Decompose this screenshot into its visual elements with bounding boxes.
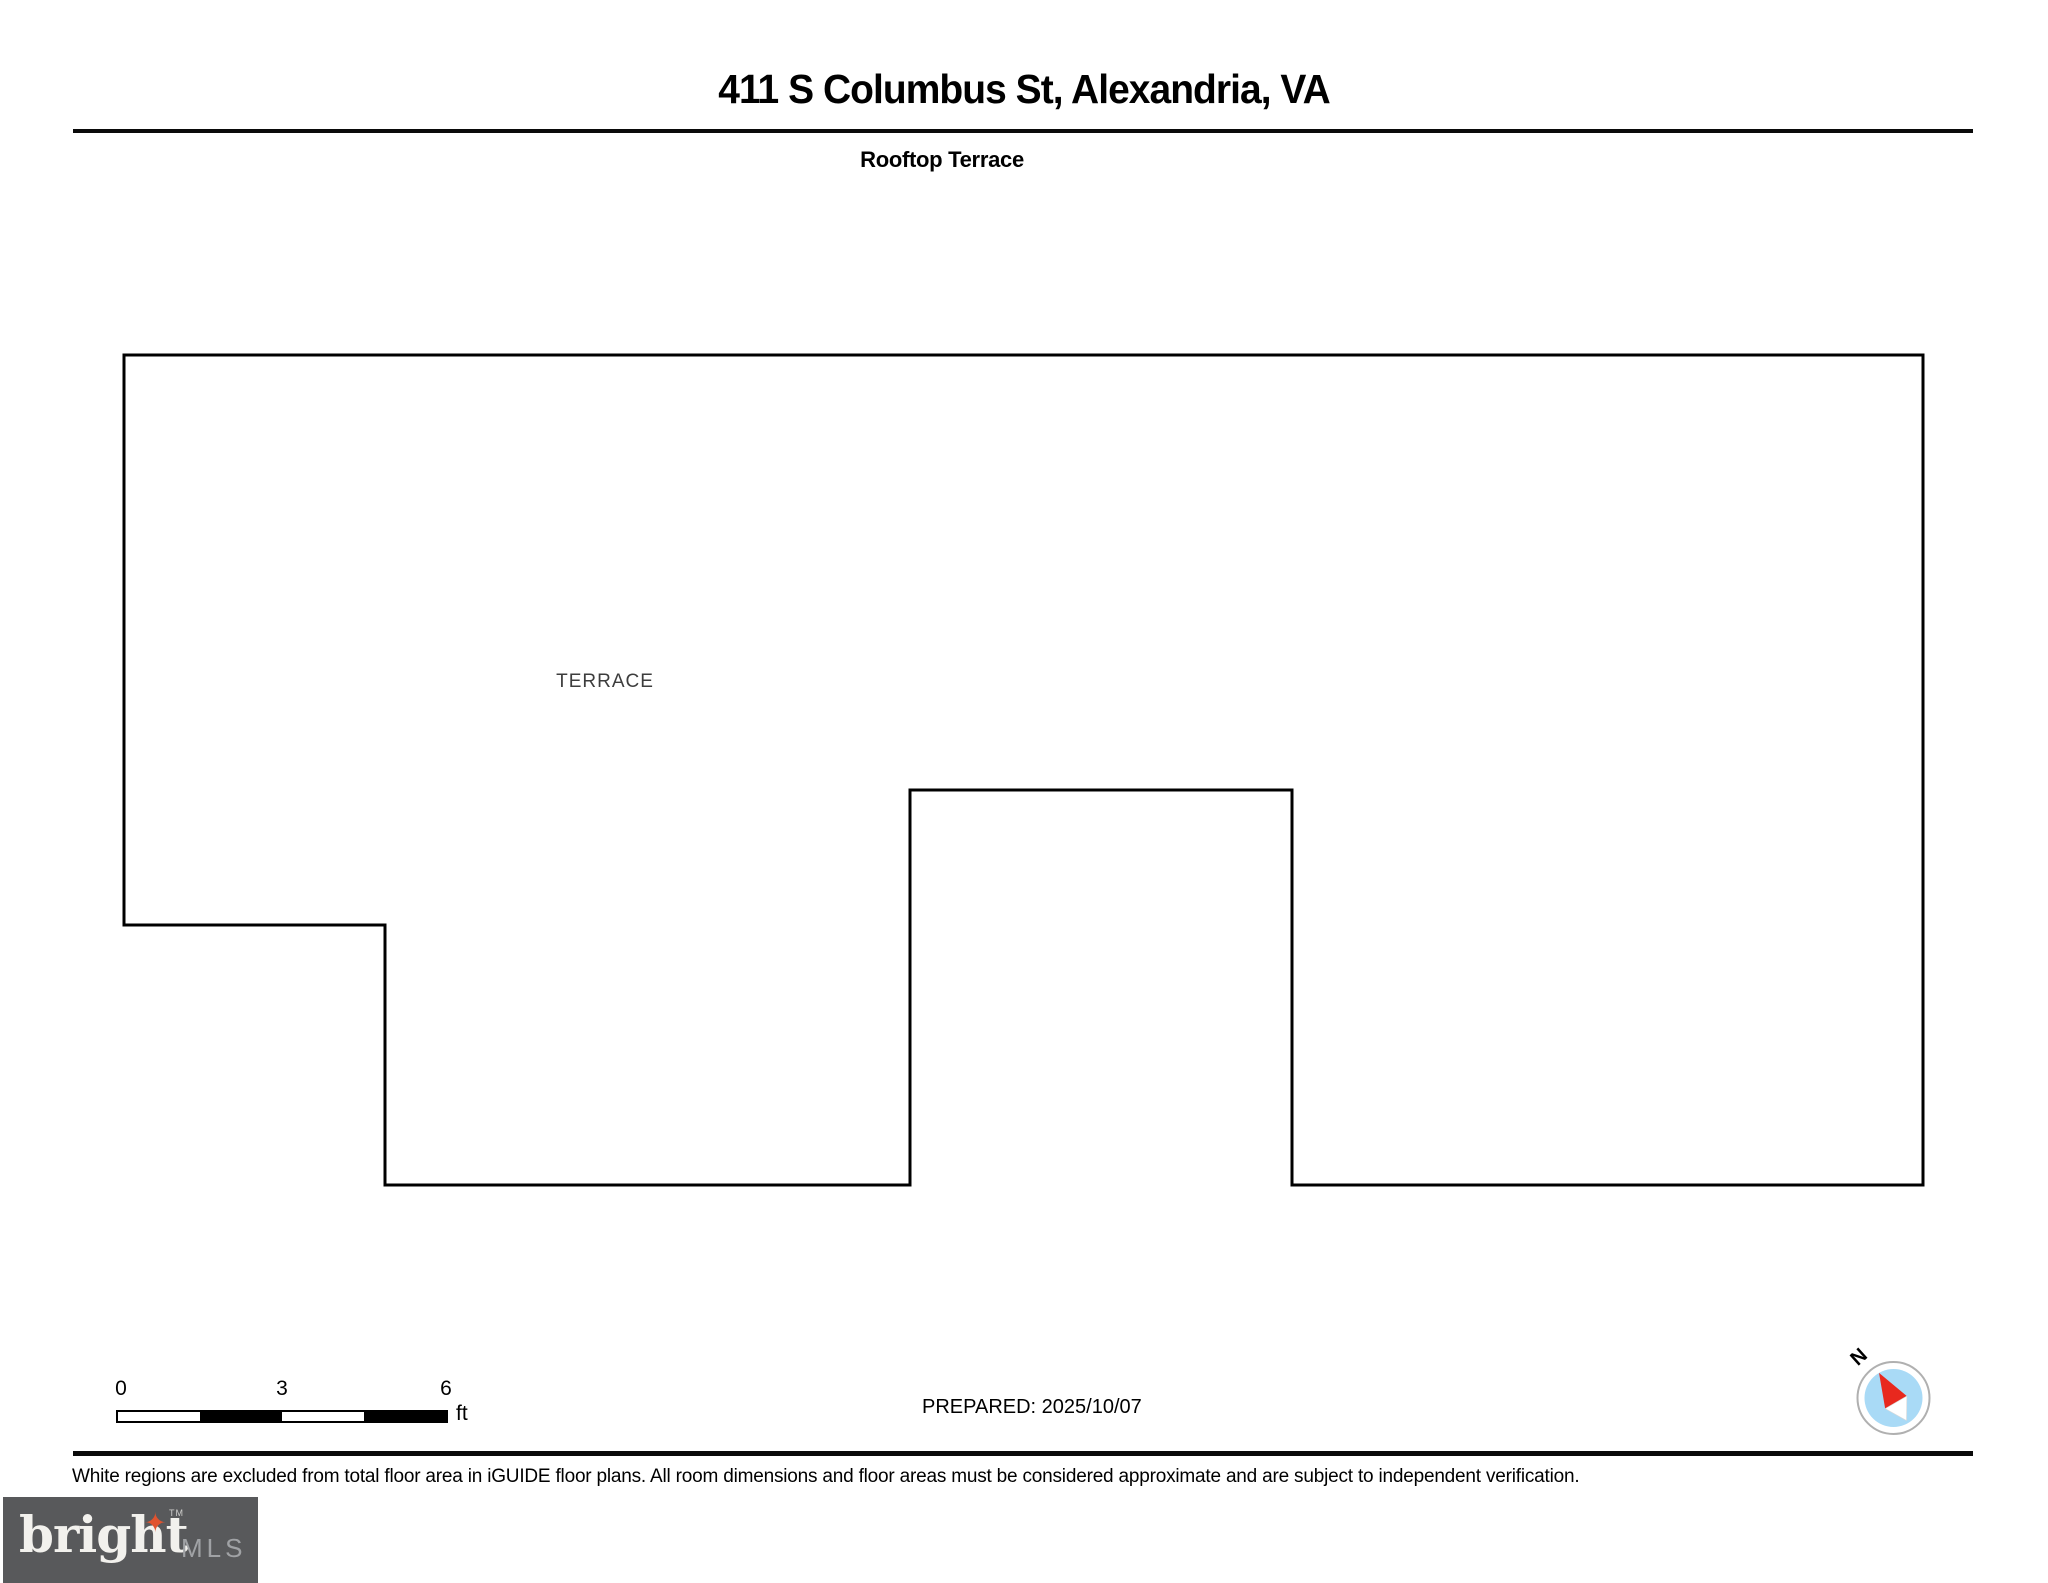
floor-plan-canvas xyxy=(0,0,2048,1583)
disclaimer-text: White regions are excluded from total fl… xyxy=(72,1466,1632,1488)
brand-logo: bright ✦ TM MLS xyxy=(3,1497,258,1583)
scale-bar xyxy=(116,1410,448,1423)
scale-bar-segment xyxy=(364,1412,446,1421)
scale-bar-segment xyxy=(200,1412,282,1421)
scale-bar-segment xyxy=(282,1412,364,1421)
brand-suffix-mls: MLS xyxy=(181,1533,246,1564)
scale-bar-segment xyxy=(118,1412,200,1421)
brand-trademark: TM xyxy=(169,1508,184,1518)
room-label-terrace: TERRACE xyxy=(556,671,654,693)
floor-plan-outline xyxy=(124,355,1923,1185)
compass: N xyxy=(1835,1330,1950,1445)
brand-star-icon: ✦ xyxy=(144,1510,167,1537)
compass-north-label: N xyxy=(1846,1344,1871,1370)
footer-divider xyxy=(73,1451,1973,1456)
scale-tick-0: 0 xyxy=(115,1377,127,1401)
scale-unit-label: ft xyxy=(456,1402,468,1426)
scale-tick-3: 3 xyxy=(276,1377,288,1401)
prepared-date: PREPARED: 2025/10/07 xyxy=(922,1396,1142,1419)
scale-tick-6: 6 xyxy=(440,1377,452,1401)
